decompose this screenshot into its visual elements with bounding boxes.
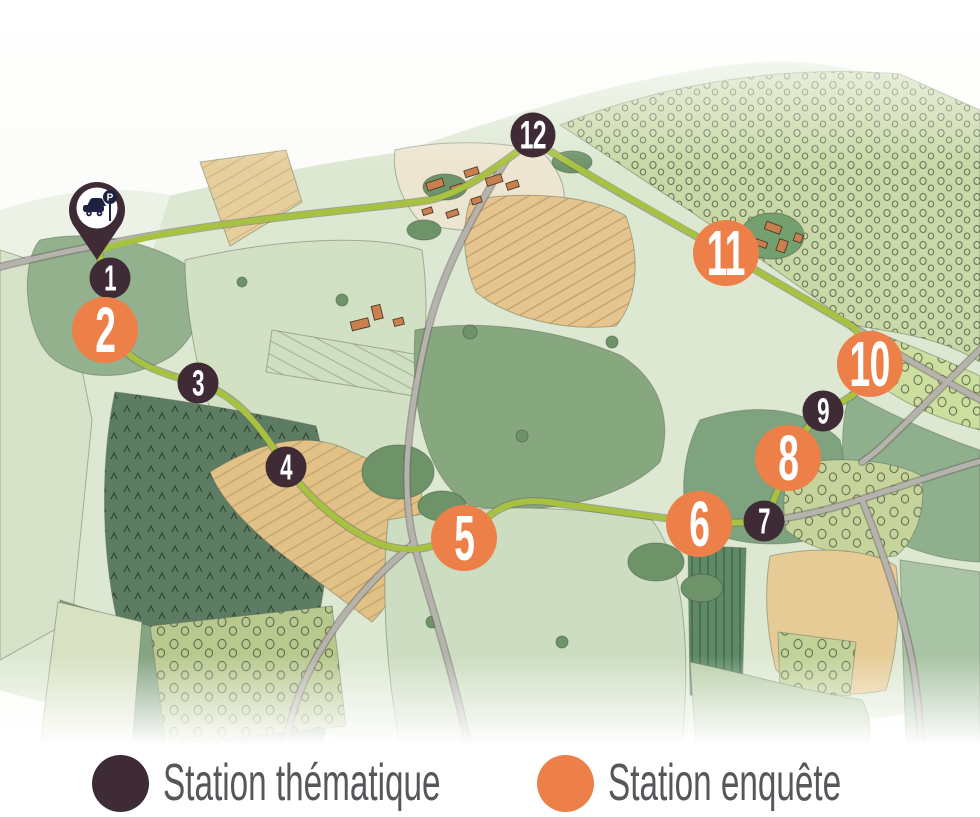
legend-label-survey: Station enquête — [608, 757, 841, 809]
station-number: 11 — [707, 221, 745, 285]
station-number: 9 — [817, 393, 829, 429]
station-number: 12 — [520, 115, 546, 155]
legend-item-survey: Station enquête — [537, 753, 972, 813]
station-number: 8 — [778, 426, 798, 490]
thematic-station-dot-icon — [92, 755, 149, 812]
legend-label-thematic: Station thématique — [163, 757, 441, 809]
station-marker-2: 2 — [72, 297, 138, 363]
trail-map-poster: P 123456789101112 Station thématique Sta… — [0, 0, 980, 817]
station-number: 7 — [758, 503, 770, 539]
station-marker-6: 6 — [666, 491, 732, 557]
station-marker-4: 4 — [266, 447, 307, 488]
station-number: 5 — [454, 506, 474, 570]
station-number: 3 — [192, 365, 204, 401]
station-marker-7: 7 — [744, 501, 785, 542]
station-number: 10 — [850, 332, 890, 396]
station-marker-1: 1 — [90, 258, 131, 299]
station-marker-3: 3 — [178, 363, 219, 404]
stations-layer: 123456789101112 — [0, 0, 980, 745]
station-marker-10: 10 — [837, 331, 903, 397]
station-marker-9: 9 — [803, 391, 844, 432]
station-number: 4 — [280, 449, 292, 485]
station-number: 2 — [95, 298, 115, 362]
station-marker-5: 5 — [431, 505, 497, 571]
station-number: 6 — [689, 492, 709, 556]
station-marker-12: 12 — [511, 113, 556, 158]
station-marker-11: 11 — [693, 220, 759, 286]
legend-item-thematic: Station thématique — [92, 753, 597, 813]
survey-station-dot-icon — [537, 755, 594, 812]
station-number: 1 — [104, 260, 116, 296]
legend: Station thématique Station enquête — [0, 753, 980, 817]
station-marker-8: 8 — [755, 425, 821, 491]
